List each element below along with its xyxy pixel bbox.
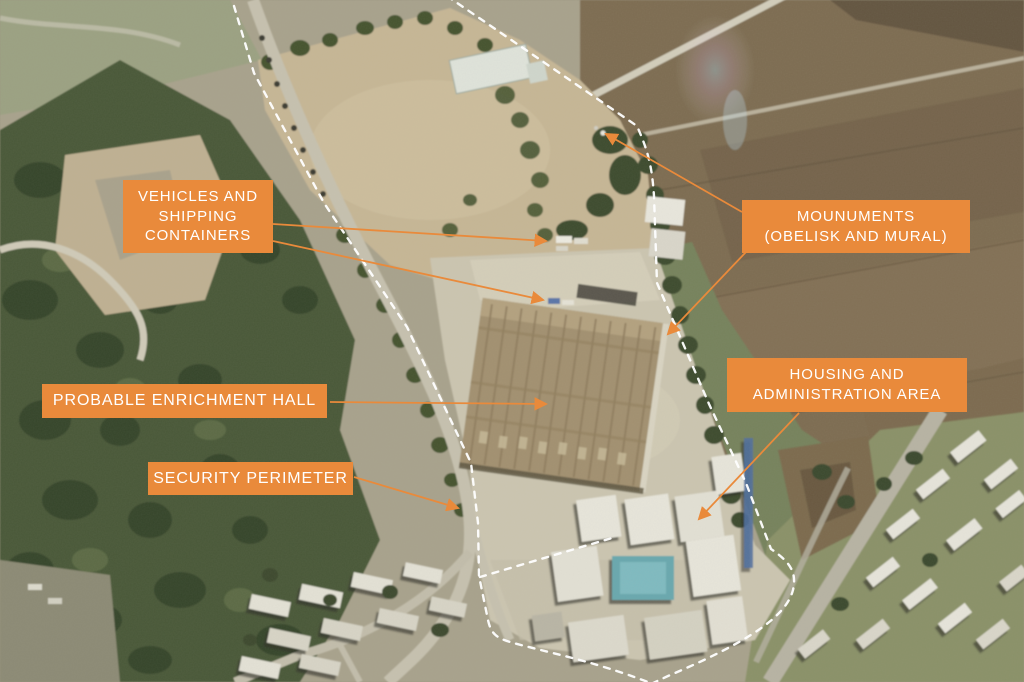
label-line: SHIPPING — [159, 207, 238, 227]
label-line: MOUNUMENTS — [797, 207, 915, 227]
label-security-perimeter: SECURITY PERIMETER — [148, 462, 353, 495]
label-line: SECURITY PERIMETER — [153, 468, 348, 489]
satellite-basemap — [0, 0, 1024, 682]
label-probable-enrichment-hall: PROBABLE ENRICHMENT HALL — [42, 384, 327, 418]
label-line: ADMINISTRATION AREA — [753, 385, 942, 405]
label-line: (OBELISK AND MURAL) — [765, 227, 948, 247]
label-line: CONTAINERS — [145, 226, 251, 246]
label-monuments-obelisk-and-mural: MOUNUMENTS (OBELISK AND MURAL) — [742, 200, 970, 253]
label-line: HOUSING AND — [790, 365, 905, 385]
label-line: PROBABLE ENRICHMENT HALL — [53, 390, 316, 411]
photo-grain-overlay — [0, 0, 1024, 682]
label-line: VEHICLES AND — [138, 187, 258, 207]
label-housing-and-administration-area: HOUSING AND ADMINISTRATION AREA — [727, 358, 967, 412]
label-vehicles-and-shipping-containers: VEHICLES AND SHIPPING CONTAINERS — [123, 180, 273, 253]
annotated-satellite-image: VEHICLES AND SHIPPING CONTAINERS MOUNUME… — [0, 0, 1024, 682]
